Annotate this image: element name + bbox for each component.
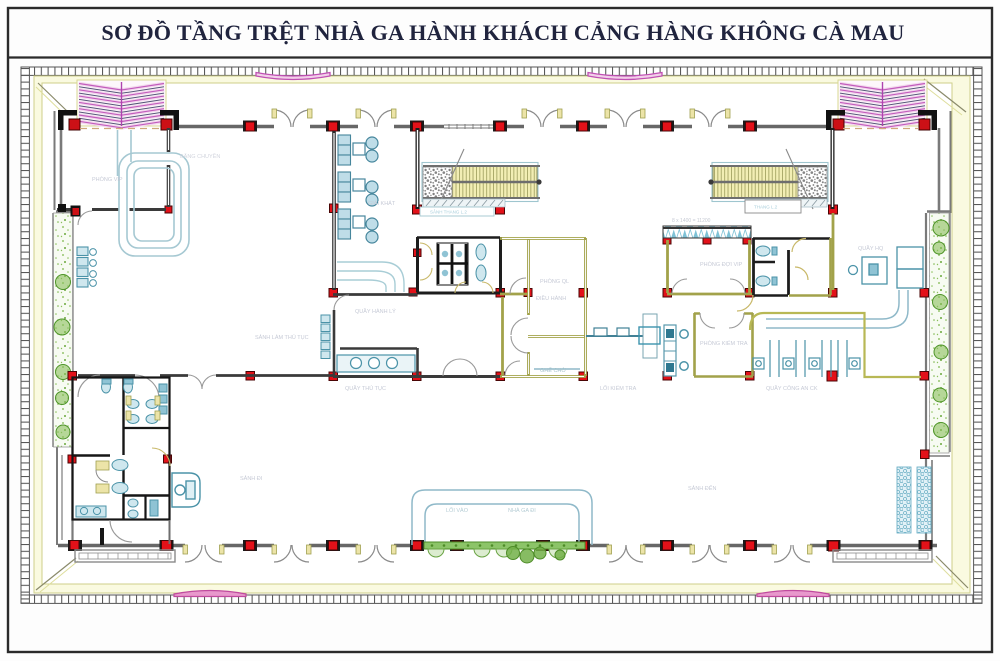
svg-text:SẢNH ĐẾN: SẢNH ĐẾN xyxy=(688,485,716,492)
svg-text:ĐIỀU HÀNH: ĐIỀU HÀNH xyxy=(536,295,566,302)
svg-text:BĂNG CHUYỀN: BĂNG CHUYỀN xyxy=(180,153,220,160)
svg-text:PHÒNG VIP: PHÒNG VIP xyxy=(92,176,123,183)
svg-text:PHÒNG ĐỢI VIP: PHÒNG ĐỢI VIP xyxy=(700,261,743,268)
svg-text:GIẢI KHÁT: GIẢI KHÁT xyxy=(368,200,396,207)
svg-text:SẢNH THANG L.2: SẢNH THANG L.2 xyxy=(430,209,467,215)
svg-text:SẢNH ĐI: SẢNH ĐI xyxy=(240,475,263,482)
svg-text:PHÒNG KIỂM TRA: PHÒNG KIỂM TRA xyxy=(700,340,748,347)
svg-text:QUẦY CÔNG AN CK: QUẦY CÔNG AN CK xyxy=(766,385,818,392)
svg-text:SƠ ĐỒ TẦNG TRỆT NHÀ GA HÀNH KH: SƠ ĐỒ TẦNG TRỆT NHÀ GA HÀNH KHÁCH CẢNG H… xyxy=(101,19,904,45)
svg-text:QUẦY HQ: QUẦY HQ xyxy=(858,245,884,252)
svg-text:QUẦY HÀNH LÝ: QUẦY HÀNH LÝ xyxy=(355,308,396,315)
svg-text:NHÀ GA ĐI: NHÀ GA ĐI xyxy=(508,507,536,514)
svg-text:LỐI KIỂM TRA: LỐI KIỂM TRA xyxy=(600,385,637,392)
svg-text:LỐI VÀO: LỐI VÀO xyxy=(446,507,469,514)
svg-text:8 x 1400 = 11200: 8 x 1400 = 11200 xyxy=(672,218,711,224)
svg-text:THANG L.2: THANG L.2 xyxy=(754,205,778,210)
svg-text:GHẾ CHỜ: GHẾ CHỜ xyxy=(540,367,566,374)
svg-text:QUẦY THỦ TỤC: QUẦY THỦ TỤC xyxy=(345,385,386,392)
svg-text:SẢNH LÀM THỦ TỤC: SẢNH LÀM THỦ TỤC xyxy=(255,334,309,341)
svg-text:PHÒNG QL: PHÒNG QL xyxy=(540,278,569,285)
